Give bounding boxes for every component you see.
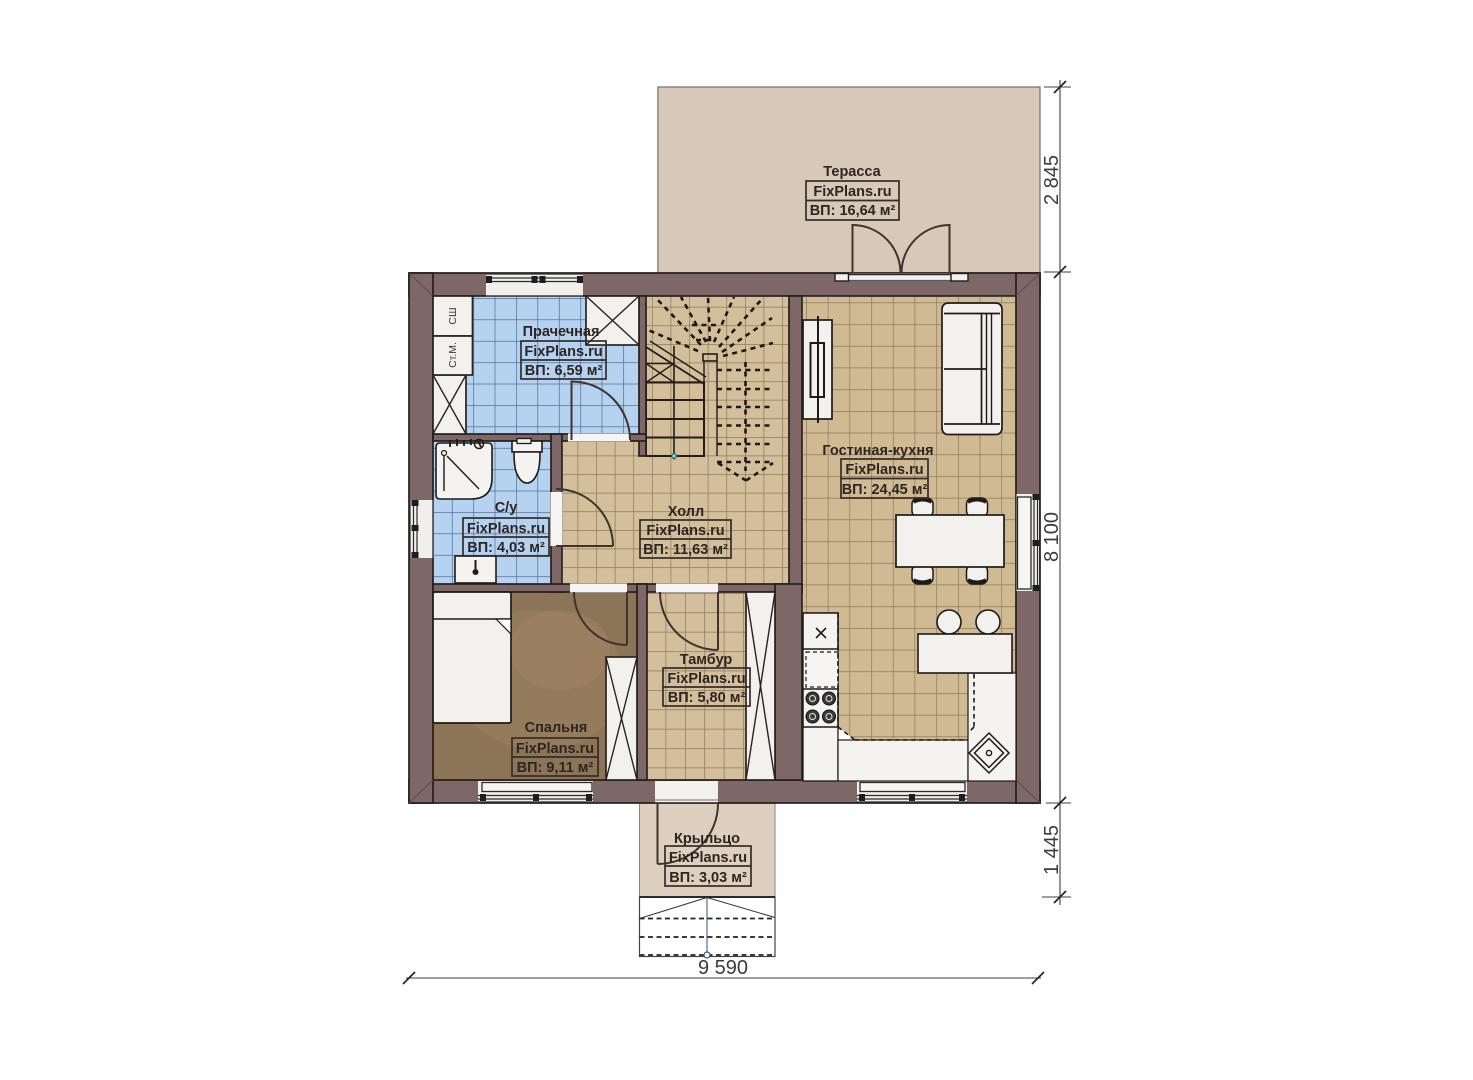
svg-text:Крыльцо: Крыльцо: [674, 831, 740, 847]
svg-text:FixPlans.ru: FixPlans.ru: [813, 184, 891, 200]
svg-text:ВП: 4,03 м²: ВП: 4,03 м²: [467, 540, 545, 556]
svg-text:Ст.М.: Ст.М.: [447, 342, 459, 368]
svg-text:FixPlans.ru: FixPlans.ru: [516, 741, 594, 757]
svg-text:ВП: 5,80 м²: ВП: 5,80 м²: [668, 690, 746, 706]
svg-text:FixPlans.ru: FixPlans.ru: [845, 462, 923, 478]
svg-text:С/у: С/у: [495, 500, 518, 516]
svg-text:8 100: 8 100: [1041, 512, 1063, 562]
svg-text:Гостиная-кухня: Гостиная-кухня: [822, 443, 933, 459]
svg-text:ВП: 24,45 м²: ВП: 24,45 м²: [842, 482, 928, 498]
svg-text:ВП: 11,63 м²: ВП: 11,63 м²: [643, 542, 728, 558]
svg-text:1 445: 1 445: [1041, 825, 1063, 875]
svg-text:СШ: СШ: [447, 307, 459, 324]
svg-text:9 590: 9 590: [698, 957, 748, 979]
svg-text:ВП: 6,59 м²: ВП: 6,59 м²: [525, 363, 603, 379]
svg-text:ВП: 3,03 м²: ВП: 3,03 м²: [669, 870, 747, 886]
svg-text:Прачечная: Прачечная: [523, 324, 600, 340]
svg-text:Тамбур: Тамбур: [680, 652, 733, 668]
svg-text:Холл: Холл: [668, 504, 704, 520]
svg-text:FixPlans.ru: FixPlans.ru: [467, 521, 545, 537]
svg-text:FixPlans.ru: FixPlans.ru: [646, 523, 724, 539]
svg-text:Терасса: Терасса: [823, 164, 881, 180]
svg-text:FixPlans.ru: FixPlans.ru: [667, 671, 745, 687]
svg-text:FixPlans.ru: FixPlans.ru: [669, 850, 747, 866]
svg-text:FixPlans.ru: FixPlans.ru: [524, 344, 602, 360]
svg-text:ВП: 9,11 м²: ВП: 9,11 м²: [517, 760, 594, 776]
svg-text:2 845: 2 845: [1041, 155, 1063, 205]
svg-text:ВП: 16,64 м²: ВП: 16,64 м²: [810, 203, 896, 219]
svg-text:Спальня: Спальня: [525, 720, 588, 736]
